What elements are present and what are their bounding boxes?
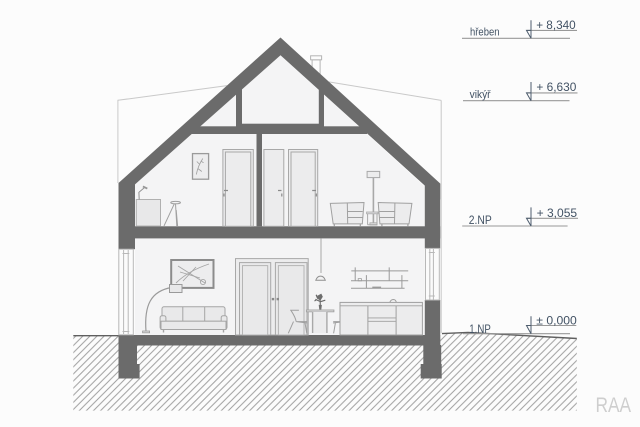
svg-text:+ 3,055: + 3,055 <box>537 206 578 220</box>
svg-text:vikýř: vikýř <box>470 89 491 101</box>
svg-text:+ 8,340: + 8,340 <box>536 18 576 32</box>
svg-text:1.NP: 1.NP <box>469 323 491 336</box>
svg-text:RAA: RAA <box>596 394 632 417</box>
svg-text:hřeben: hřeben <box>470 27 500 39</box>
svg-text:+ 6,630: + 6,630 <box>536 80 576 94</box>
svg-text:± 0,000: ± 0,000 <box>536 313 577 327</box>
svg-text:2.NP: 2.NP <box>469 214 492 227</box>
